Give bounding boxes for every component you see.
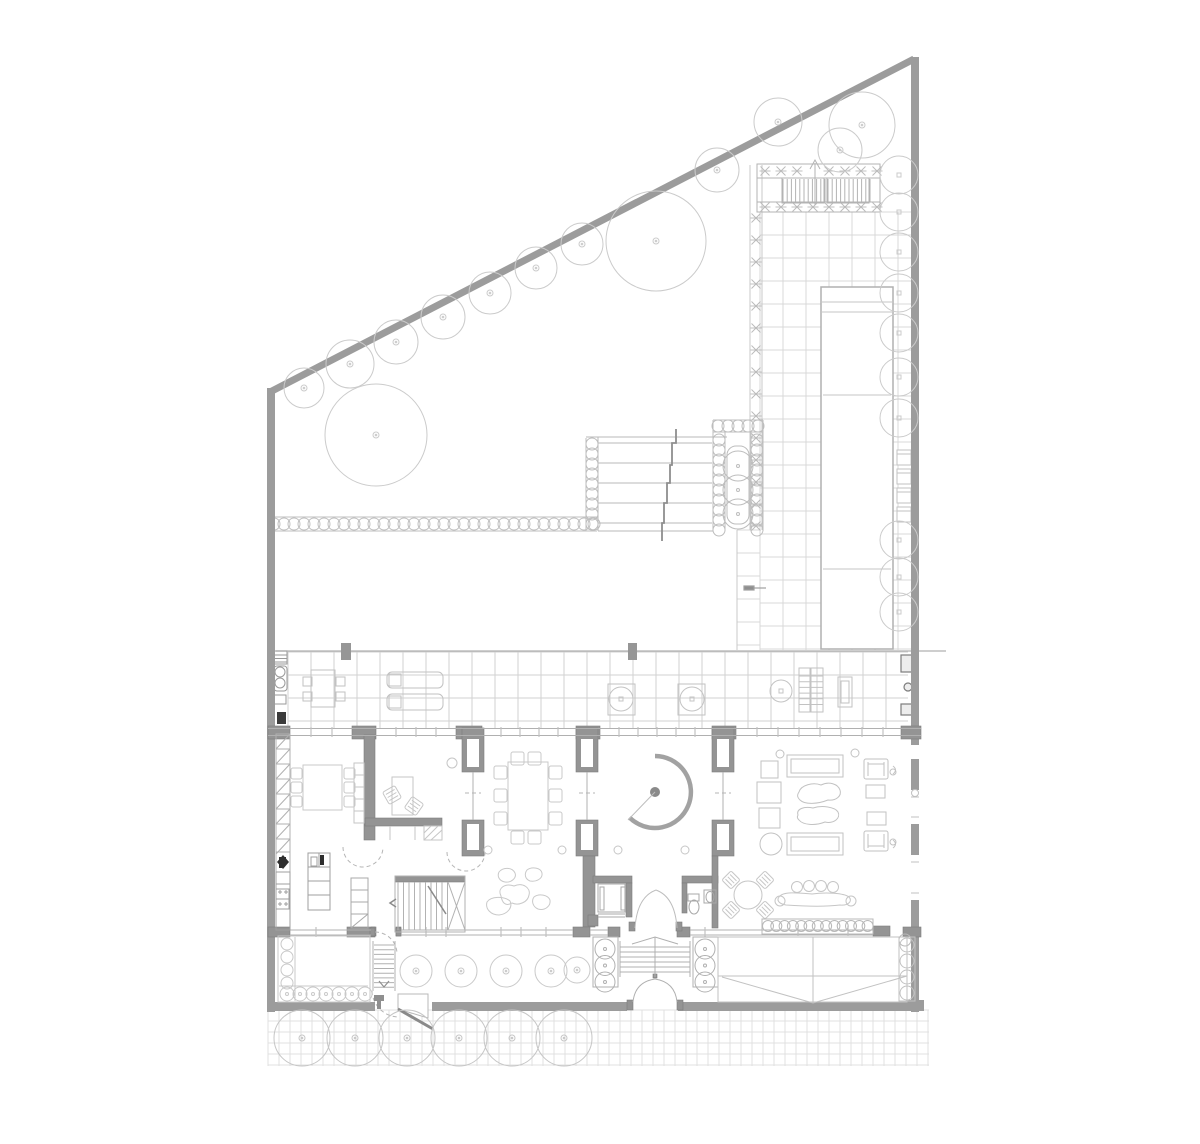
terrace-grill-dark: [277, 712, 286, 724]
side-stair-arrow: [379, 981, 389, 987]
pantry: [351, 878, 368, 928]
terrace-paving-grid: [288, 652, 908, 728]
entry-double-doors: [635, 890, 677, 928]
spiral-stair-radius: [628, 792, 655, 820]
bar-counter: [775, 881, 856, 907]
terrace-pot-trees: [609, 680, 792, 711]
garden-steps: [586, 437, 727, 531]
gate-post: [374, 995, 384, 1009]
gate-leaf: [398, 994, 428, 1018]
main-stair: [395, 876, 465, 932]
site-plan: [0, 0, 1200, 1144]
terrace-outdoor-kitchen: [273, 651, 287, 704]
pool-side-loungers: [897, 450, 911, 522]
spiral-stair: [630, 756, 691, 828]
garden-trees: [284, 92, 895, 486]
steps-break-line: [662, 429, 676, 541]
floor-plan-canvas: [0, 0, 1200, 1144]
front-yard-trees: [400, 955, 590, 987]
house-structure-walls: [268, 726, 921, 1010]
family-lounge: [487, 868, 550, 915]
driveway: [718, 937, 915, 1003]
entry-forecourt: [593, 937, 718, 1002]
sidewalk-paving-grid: [268, 1010, 929, 1066]
breakfast-set: [722, 871, 774, 919]
upper-stair-terrace: [757, 160, 880, 212]
opening-dashes: [343, 793, 731, 1017]
garden-hedge: [268, 517, 600, 531]
living-room: [757, 749, 896, 855]
front-garden: [278, 936, 372, 1002]
side-garden-stair: [373, 941, 395, 991]
side-passage-hatch: [276, 734, 290, 872]
pool-ladder-mark: [744, 586, 766, 590]
elevator-car: [598, 884, 625, 917]
